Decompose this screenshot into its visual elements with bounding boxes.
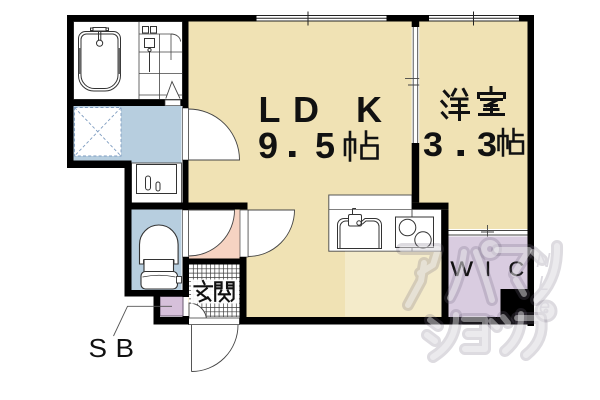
svg-text:e: e (539, 296, 550, 318)
svg-text:L: L (538, 273, 549, 295)
svg-text:K: K (356, 89, 382, 130)
svg-text:S: S (89, 333, 108, 363)
svg-text:N: N (536, 250, 551, 272)
svg-text:3: 3 (423, 126, 443, 164)
svg-text:5: 5 (315, 125, 335, 166)
svg-text:3: 3 (477, 126, 497, 164)
svg-text:D: D (293, 89, 319, 130)
svg-text:B: B (116, 333, 135, 363)
svg-text:9: 9 (258, 125, 278, 166)
svg-text:L: L (259, 89, 281, 130)
